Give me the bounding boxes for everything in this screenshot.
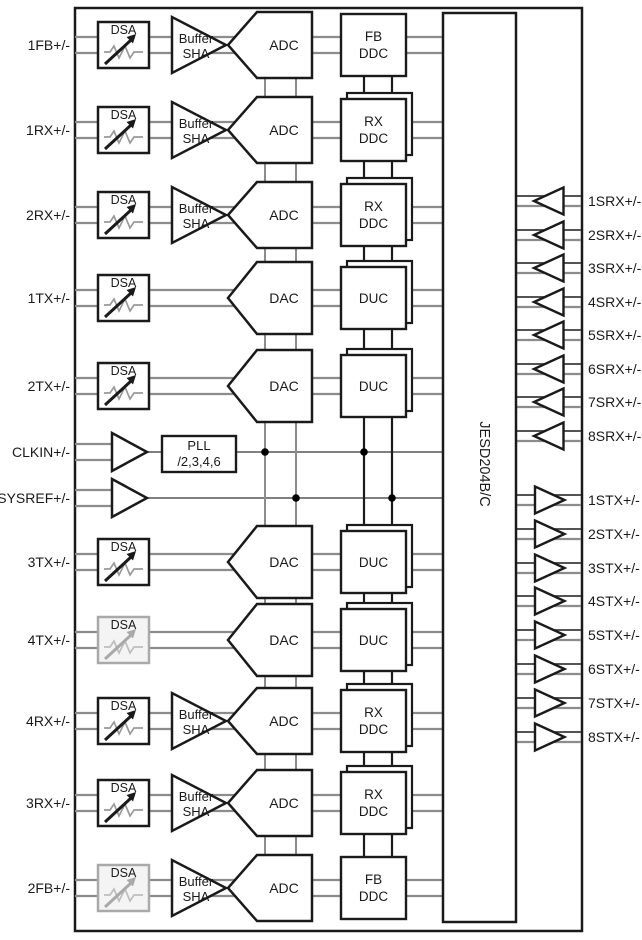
srx-receiver-amp-icon bbox=[534, 356, 564, 383]
rx-ddc-label-line1: RX bbox=[364, 199, 383, 214]
stx-driver-amp-icon bbox=[535, 555, 565, 582]
serdes-port-label: 5SRX+/- bbox=[588, 327, 642, 343]
serdes-port-label: 4SRX+/- bbox=[588, 294, 642, 310]
srx-receiver-amp-icon bbox=[534, 389, 564, 416]
buffer-sha-label-line2: SHA bbox=[183, 804, 210, 819]
buffer-sha-label-line1: Buffer bbox=[179, 789, 214, 804]
sysref-buffer-amp-icon bbox=[112, 479, 147, 517]
clock-port-label: SYSREF+/- bbox=[0, 490, 70, 506]
dac-label: DAC bbox=[269, 632, 299, 648]
left-port-label: 4RX+/- bbox=[26, 713, 70, 729]
stx-driver-amp-icon bbox=[535, 690, 565, 717]
dac-label: DAC bbox=[269, 554, 299, 570]
rx-ddc-label-line1: RX bbox=[364, 114, 383, 129]
dsa-label: DSA bbox=[111, 276, 137, 290]
stx-driver-amp-icon bbox=[535, 622, 565, 649]
rx-ddc-label-line2: DDC bbox=[359, 131, 388, 146]
buffer-sha-label-line2: SHA bbox=[183, 46, 210, 61]
junction-dot bbox=[360, 448, 368, 456]
stx-driver-amp-icon bbox=[535, 521, 565, 548]
adc-label: ADC bbox=[269, 37, 299, 53]
pll-label-line2: /2,3,4,6 bbox=[177, 454, 220, 469]
srx-receiver-amp-icon bbox=[534, 322, 564, 349]
dac-label: DAC bbox=[269, 378, 299, 394]
duc-label: DUC bbox=[359, 379, 388, 394]
serdes-port-label: 3STX+/- bbox=[588, 560, 640, 576]
dsa-label: DSA bbox=[111, 618, 137, 632]
adc-label: ADC bbox=[269, 713, 299, 729]
adc-label: ADC bbox=[269, 122, 299, 138]
buffer-sha-label-line1: Buffer bbox=[179, 707, 214, 722]
serdes-port-label: 3SRX+/- bbox=[588, 260, 642, 276]
buffer-sha-label-line2: SHA bbox=[183, 131, 210, 146]
stx-driver-amp-icon bbox=[535, 487, 565, 514]
serdes-port-label: 6STX+/- bbox=[588, 661, 640, 677]
left-port-label: 3RX+/- bbox=[26, 795, 70, 811]
buffer-sha-label-line1: Buffer bbox=[179, 116, 214, 131]
fb-ddc-block bbox=[341, 14, 406, 76]
dsa-label: DSA bbox=[111, 364, 137, 378]
fb-ddc-label-line1: FB bbox=[365, 29, 382, 44]
buffer-sha-label-line1: Buffer bbox=[179, 31, 214, 46]
duc-label: DUC bbox=[359, 555, 388, 570]
clkin-buffer-amp-icon bbox=[112, 433, 147, 471]
dsa-label: DSA bbox=[111, 540, 137, 554]
dac-label: DAC bbox=[269, 290, 299, 306]
srx-receiver-amp-icon bbox=[534, 222, 564, 249]
clock-port-label: CLKIN+/- bbox=[12, 444, 70, 460]
fb-ddc-label-line2: DDC bbox=[359, 889, 388, 904]
dsa-label: DSA bbox=[111, 781, 137, 795]
rx-ddc-block bbox=[341, 772, 406, 834]
srx-receiver-amp-icon bbox=[534, 423, 564, 450]
functional-block-diagram: 1FB+/-1RX+/-2RX+/-1TX+/-2TX+/-3TX+/-4TX+… bbox=[0, 0, 642, 935]
serdes-port-label: 1SRX+/- bbox=[588, 193, 642, 209]
serdes-port-label: 5STX+/- bbox=[588, 627, 640, 643]
dsa-label: DSA bbox=[111, 699, 137, 713]
left-port-label: 3TX+/- bbox=[28, 554, 71, 570]
stx-driver-amp-icon bbox=[535, 656, 565, 683]
adc-label: ADC bbox=[269, 795, 299, 811]
rx-ddc-label-line1: RX bbox=[364, 787, 383, 802]
serdes-port-label: 1STX+/- bbox=[588, 492, 640, 508]
buffer-sha-label-line2: SHA bbox=[183, 216, 210, 231]
fb-ddc-label-line1: FB bbox=[365, 872, 382, 887]
left-port-label: 2TX+/- bbox=[28, 378, 71, 394]
left-port-label: 1RX+/- bbox=[26, 122, 70, 138]
left-port-label: 1FB+/- bbox=[28, 37, 71, 53]
left-port-label: 2FB+/- bbox=[28, 880, 71, 896]
dsa-label: DSA bbox=[111, 23, 137, 37]
srx-receiver-amp-icon bbox=[534, 255, 564, 282]
duc-label: DUC bbox=[359, 633, 388, 648]
srx-receiver-amp-icon bbox=[534, 188, 564, 215]
junction-dot bbox=[388, 494, 396, 502]
adc-label: ADC bbox=[269, 207, 299, 223]
buffer-sha-label-line1: Buffer bbox=[179, 201, 214, 216]
dsa-label: DSA bbox=[111, 866, 137, 880]
diagram-canvas: 1FB+/-1RX+/-2RX+/-1TX+/-2TX+/-3TX+/-4TX+… bbox=[0, 0, 642, 935]
fb-ddc-label-line2: DDC bbox=[359, 46, 388, 61]
rx-ddc-label-line1: RX bbox=[364, 705, 383, 720]
serdes-port-label: 4STX+/- bbox=[588, 593, 640, 609]
buffer-sha-label-line2: SHA bbox=[183, 889, 210, 904]
serdes-port-label: 7STX+/- bbox=[588, 695, 640, 711]
duc-label: DUC bbox=[359, 291, 388, 306]
left-port-label: 4TX+/- bbox=[28, 632, 71, 648]
left-port-label: 1TX+/- bbox=[28, 290, 71, 306]
pll-label-line1: PLL bbox=[187, 438, 210, 453]
serdes-port-label: 2SRX+/- bbox=[588, 227, 642, 243]
serdes-port-label: 8SRX+/- bbox=[588, 428, 642, 444]
rx-ddc-label-line2: DDC bbox=[359, 804, 388, 819]
rx-ddc-block bbox=[341, 99, 406, 161]
jesd204-label: JESD204B/C bbox=[476, 421, 492, 506]
junction-dot bbox=[261, 448, 269, 456]
rx-ddc-label-line2: DDC bbox=[359, 722, 388, 737]
left-port-label: 2RX+/- bbox=[26, 207, 70, 223]
serdes-port-label: 6SRX+/- bbox=[588, 361, 642, 377]
fb-ddc-block bbox=[341, 857, 406, 919]
serdes-port-label: 2STX+/- bbox=[588, 526, 640, 542]
rx-ddc-label-line2: DDC bbox=[359, 216, 388, 231]
stx-driver-amp-icon bbox=[535, 588, 565, 615]
stx-driver-amp-icon bbox=[535, 724, 565, 751]
rx-ddc-block bbox=[341, 184, 406, 246]
serdes-port-label: 8STX+/- bbox=[588, 729, 640, 745]
junction-dot bbox=[292, 494, 300, 502]
rx-ddc-block bbox=[341, 690, 406, 752]
serdes-port-label: 7SRX+/- bbox=[588, 394, 642, 410]
adc-label: ADC bbox=[269, 880, 299, 896]
dsa-label: DSA bbox=[111, 108, 137, 122]
dsa-label: DSA bbox=[111, 193, 137, 207]
buffer-sha-label-line2: SHA bbox=[183, 722, 210, 737]
buffer-sha-label-line1: Buffer bbox=[179, 874, 214, 889]
srx-receiver-amp-icon bbox=[534, 289, 564, 316]
